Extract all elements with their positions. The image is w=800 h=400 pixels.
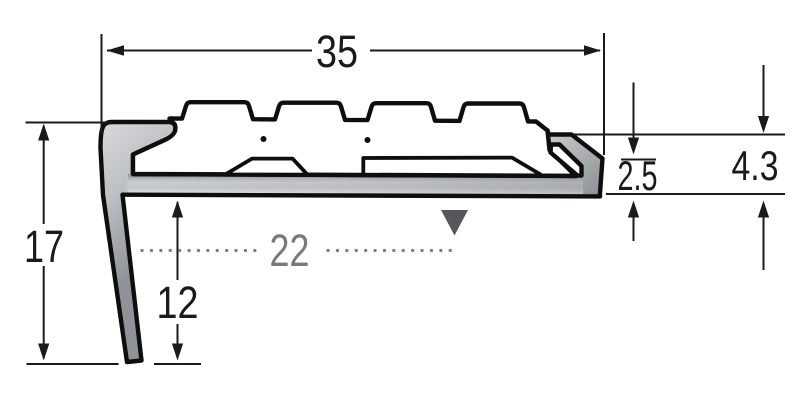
svg-text:4.3: 4.3 (732, 142, 779, 189)
svg-text:22: 22 (270, 225, 310, 276)
svg-text:12: 12 (157, 277, 199, 328)
svg-text:2.5: 2.5 (618, 152, 658, 199)
svg-text:35: 35 (316, 26, 358, 77)
svg-text:17: 17 (24, 221, 64, 272)
